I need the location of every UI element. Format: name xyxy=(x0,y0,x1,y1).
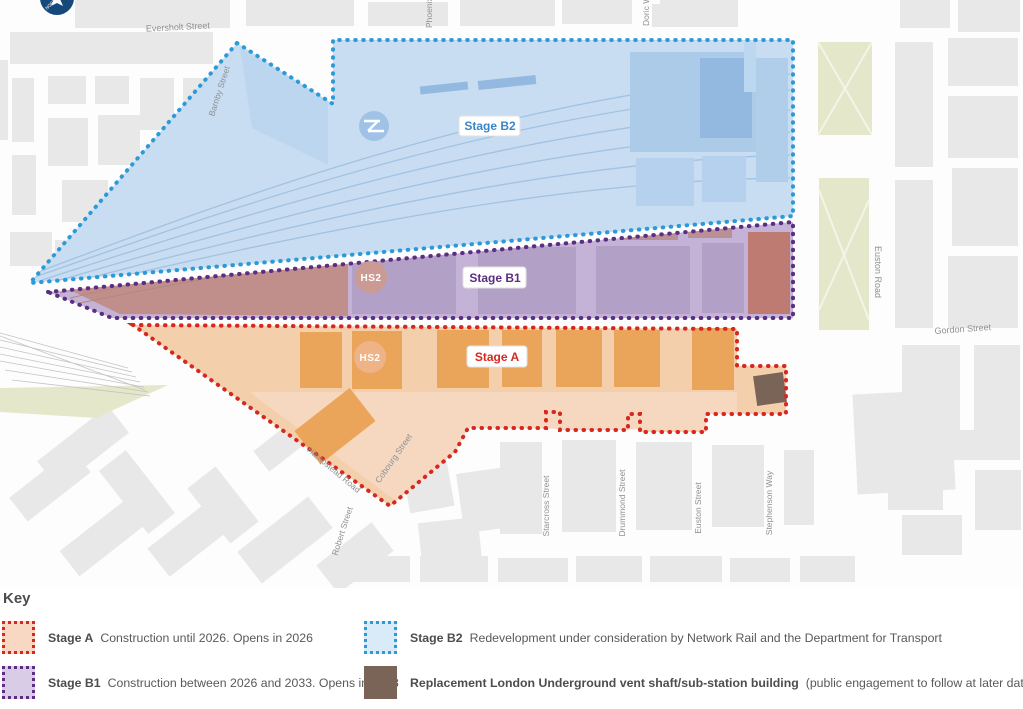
street-label-stephenson: Stephenson Way xyxy=(764,470,774,535)
vent-shaft-building xyxy=(753,372,787,406)
stage-a-desc: Construction until 2026. Opens in 2026 xyxy=(100,631,313,645)
stage-a-key-text: Stage AConstruction until 2026. Opens in… xyxy=(48,631,313,645)
street-label-euston-street: Euston Street xyxy=(693,482,703,534)
street-label-starcross: Starcross Street xyxy=(541,475,551,537)
street-label-euston-road: Euston Road xyxy=(873,246,883,298)
key-entry-vent-building: Replacement London Underground vent shaf… xyxy=(364,666,1023,699)
national-rail-icon xyxy=(359,111,389,141)
stage-a-chip: Stage A xyxy=(467,346,527,367)
stage-b1-desc: Construction between 2026 and 2033. Open… xyxy=(108,676,399,690)
key-entry-stage-b2: Stage B2Redevelopment under consideratio… xyxy=(364,621,942,654)
vent-building-desc: (public engagement to follow at later da… xyxy=(806,676,1023,690)
stage-b2-key-text: Stage B2Redevelopment under consideratio… xyxy=(410,631,942,645)
street-label-doric: Doric Way xyxy=(641,0,651,26)
euston-stages-map-page: HS2 HS2 Eversholt Street xyxy=(0,0,1023,709)
hs2-logo-b1: HS2 xyxy=(355,261,387,293)
stage-b1-swatch xyxy=(2,666,35,699)
key-entry-stage-a: Stage AConstruction until 2026. Opens in… xyxy=(2,621,313,654)
svg-text:Stage A: Stage A xyxy=(475,350,520,364)
stage-b2-swatch xyxy=(364,621,397,654)
svg-text:Stage B2: Stage B2 xyxy=(464,119,516,133)
stage-b2-desc: Redevelopment under consideration by Net… xyxy=(470,631,942,645)
stage-b2-term: Stage B2 xyxy=(410,631,463,645)
stage-b1-key-text: Stage B1Construction between 2026 and 20… xyxy=(48,676,399,690)
key-title: Key xyxy=(3,590,31,607)
stage-b1-chip: Stage B1 xyxy=(463,267,526,288)
key-entry-stage-b1: Stage B1Construction between 2026 and 20… xyxy=(2,666,399,699)
map-key: Key Stage AConstruction until 2026. Open… xyxy=(0,588,1023,709)
hs2-logo-a: HS2 xyxy=(354,341,386,373)
stage-b1-term: Stage B1 xyxy=(48,676,101,690)
stage-b2-chip: Stage B2 xyxy=(459,116,520,136)
svg-text:Stage B1: Stage B1 xyxy=(469,271,521,285)
street-label-phoenix: Phoenix Road xyxy=(424,0,434,28)
svg-text:HS2: HS2 xyxy=(360,353,381,364)
stage-a-swatch xyxy=(2,621,35,654)
site-map: HS2 HS2 Eversholt Street xyxy=(0,0,1023,590)
street-label-drummond: Drummond Street xyxy=(617,469,627,537)
vent-building-swatch xyxy=(364,666,397,699)
stage-a-term: Stage A xyxy=(48,631,93,645)
vent-building-key-text: Replacement London Underground vent shaf… xyxy=(410,676,1023,690)
svg-text:HS2: HS2 xyxy=(361,273,382,284)
vent-building-term: Replacement London Underground vent shaf… xyxy=(410,676,799,690)
